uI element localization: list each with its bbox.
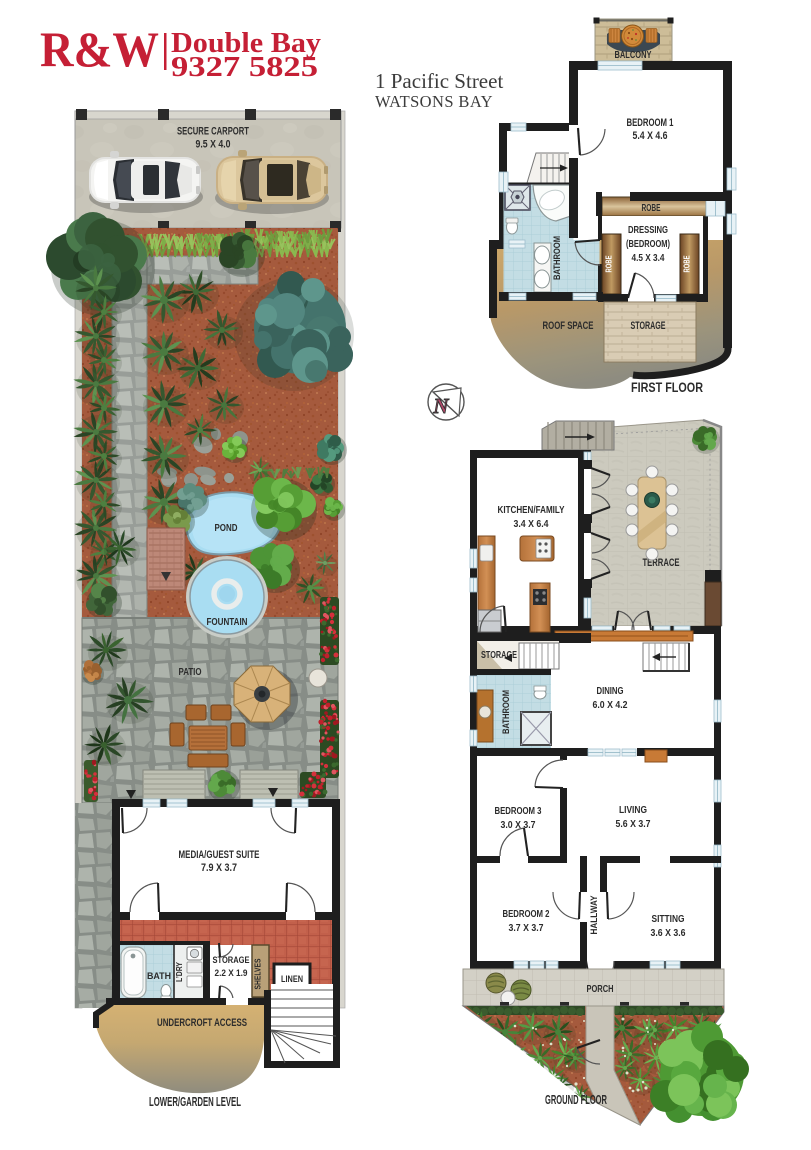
svg-text:STORAGE: STORAGE bbox=[631, 320, 666, 332]
svg-text:PATIO: PATIO bbox=[179, 666, 202, 678]
svg-text:MEDIA/GUEST SUITE: MEDIA/GUEST SUITE bbox=[179, 849, 260, 861]
svg-text:BATH: BATH bbox=[147, 971, 171, 982]
svg-text:ROBE: ROBE bbox=[604, 255, 614, 272]
svg-text:2.2 X 1.9: 2.2 X 1.9 bbox=[215, 968, 248, 979]
svg-text:BEDROOM 2: BEDROOM 2 bbox=[503, 908, 550, 920]
svg-text:R&W: R&W bbox=[40, 21, 159, 77]
svg-text:SITTING: SITTING bbox=[652, 913, 685, 925]
svg-text:5.6 X 3.7: 5.6 X 3.7 bbox=[616, 818, 651, 830]
svg-text:DINING: DINING bbox=[597, 685, 624, 697]
svg-text:LOWER/GARDEN LEVEL: LOWER/GARDEN LEVEL bbox=[149, 1094, 241, 1109]
svg-text:9327 5825: 9327 5825 bbox=[171, 52, 318, 83]
svg-text:FOUNTAIN: FOUNTAIN bbox=[207, 616, 248, 628]
svg-text:9.5 X 4.0: 9.5 X 4.0 bbox=[196, 139, 231, 151]
svg-text:6.0 X 4.2: 6.0 X 4.2 bbox=[593, 699, 628, 711]
svg-text:PORCH: PORCH bbox=[587, 983, 614, 995]
svg-text:FIRST FLOOR: FIRST FLOOR bbox=[631, 380, 703, 395]
svg-text:BEDROOM 3: BEDROOM 3 bbox=[495, 805, 542, 817]
svg-text:KITCHEN/FAMILY: KITCHEN/FAMILY bbox=[498, 504, 565, 516]
svg-text:DRESSING: DRESSING bbox=[628, 225, 668, 236]
svg-text:BATHROOM: BATHROOM bbox=[501, 690, 512, 734]
svg-text:BATHROOM: BATHROOM bbox=[552, 236, 563, 280]
svg-text:WATSONS BAY: WATSONS BAY bbox=[375, 92, 493, 111]
svg-text:SHELVES: SHELVES bbox=[253, 958, 263, 989]
svg-text:SECURE CARPORT: SECURE CARPORT bbox=[177, 126, 249, 138]
svg-text:ROBE: ROBE bbox=[682, 255, 692, 272]
svg-text:LINEN: LINEN bbox=[281, 974, 303, 985]
svg-text:N: N bbox=[432, 394, 449, 418]
svg-text:ROBE: ROBE bbox=[642, 203, 661, 214]
svg-text:GROUND FLOOR: GROUND FLOOR bbox=[545, 1092, 607, 1107]
svg-text:3.6 X 3.6: 3.6 X 3.6 bbox=[651, 927, 686, 939]
svg-text:LIVING: LIVING bbox=[619, 804, 647, 816]
svg-text:7.9 X 3.7: 7.9 X 3.7 bbox=[201, 862, 237, 874]
svg-text:5.4 X 4.6: 5.4 X 4.6 bbox=[633, 130, 668, 142]
svg-text:(BEDROOM): (BEDROOM) bbox=[626, 239, 670, 250]
svg-text:3.4 X 6.4: 3.4 X 6.4 bbox=[514, 518, 549, 530]
svg-text:4.5 X 3.4: 4.5 X 3.4 bbox=[632, 253, 665, 264]
svg-text:L’DRY: L’DRY bbox=[174, 962, 184, 982]
svg-text:BALCONY: BALCONY bbox=[615, 49, 652, 61]
svg-text:POND: POND bbox=[215, 522, 238, 534]
svg-text:BEDROOM 1: BEDROOM 1 bbox=[627, 117, 674, 129]
svg-text:1 Pacific Street: 1 Pacific Street bbox=[375, 69, 503, 93]
svg-text:3.7 X 3.7: 3.7 X 3.7 bbox=[509, 922, 544, 934]
svg-text:ROOF SPACE: ROOF SPACE bbox=[543, 320, 594, 332]
svg-text:HALLWAY: HALLWAY bbox=[589, 895, 600, 935]
svg-text:STORAGE: STORAGE bbox=[213, 955, 250, 966]
svg-text:UNDERCROFT ACCESS: UNDERCROFT ACCESS bbox=[157, 1017, 247, 1029]
